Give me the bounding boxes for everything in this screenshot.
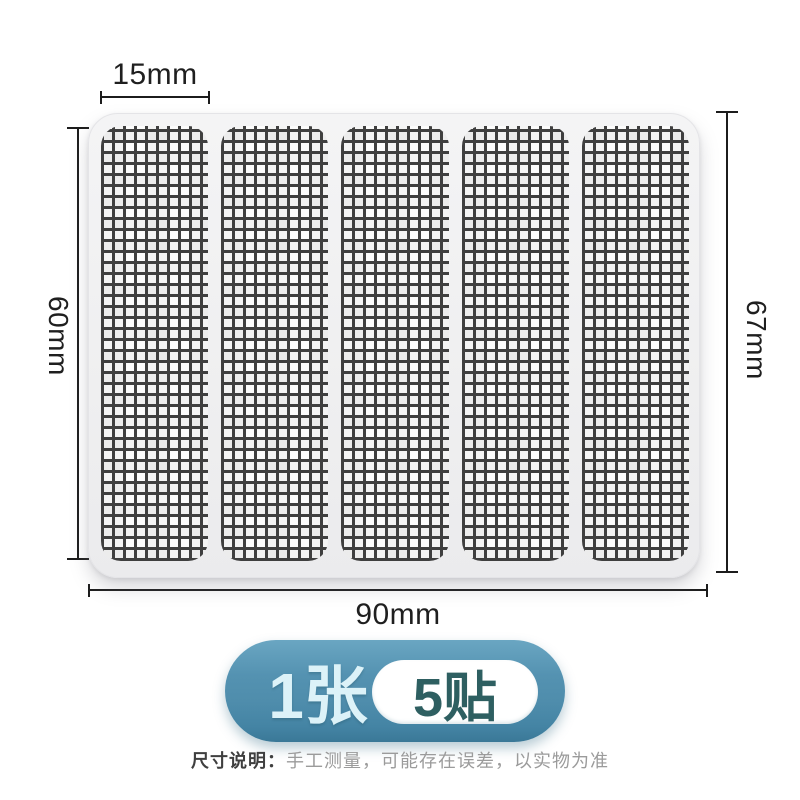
dimension-line-sheet-height — [726, 111, 728, 573]
dimension-line-sheet-width — [88, 589, 708, 591]
dimension-tick — [208, 91, 210, 104]
mesh-strip — [341, 126, 448, 561]
dimension-line-strip-height — [77, 127, 79, 560]
mesh-strip — [221, 126, 328, 561]
mesh-strip — [101, 126, 208, 561]
dimension-label-sheet-height: 67mm — [740, 300, 772, 380]
mesh-strip — [462, 126, 569, 561]
dimension-label-strip-width: 15mm — [100, 58, 210, 92]
dimension-line-strip-width — [100, 96, 210, 98]
repair-patch-sheet — [88, 113, 700, 578]
dimension-tick — [88, 584, 90, 597]
quantity-badge: 1张 5贴 — [225, 640, 565, 742]
patch-count-pill: 5贴 — [372, 660, 538, 724]
product-dimension-diagram: 15mm 60mm 67mm 90mm 1张 5贴 尺寸说明：手工测量，可能存在… — [0, 0, 800, 800]
dimension-label-strip-height: 60mm — [42, 296, 74, 376]
dimension-label-sheet-width: 90mm — [88, 598, 708, 632]
size-disclaimer: 尺寸说明：手工测量，可能存在误差，以实物为准 — [0, 747, 800, 773]
mesh-strips — [101, 126, 689, 561]
size-disclaimer-body: 手工测量，可能存在误差，以实物为准 — [286, 751, 609, 771]
dimension-tick — [67, 127, 89, 129]
size-disclaimer-title: 尺寸说明： — [191, 751, 286, 771]
dimension-tick — [716, 571, 738, 573]
mesh-strip — [582, 126, 689, 561]
dimension-tick — [67, 558, 89, 560]
dimension-tick — [100, 91, 102, 104]
dimension-tick — [716, 111, 738, 113]
dimension-tick — [706, 584, 708, 597]
sheet-count-label: 1张 — [253, 640, 383, 742]
patch-count-label: 5贴 — [413, 653, 497, 732]
